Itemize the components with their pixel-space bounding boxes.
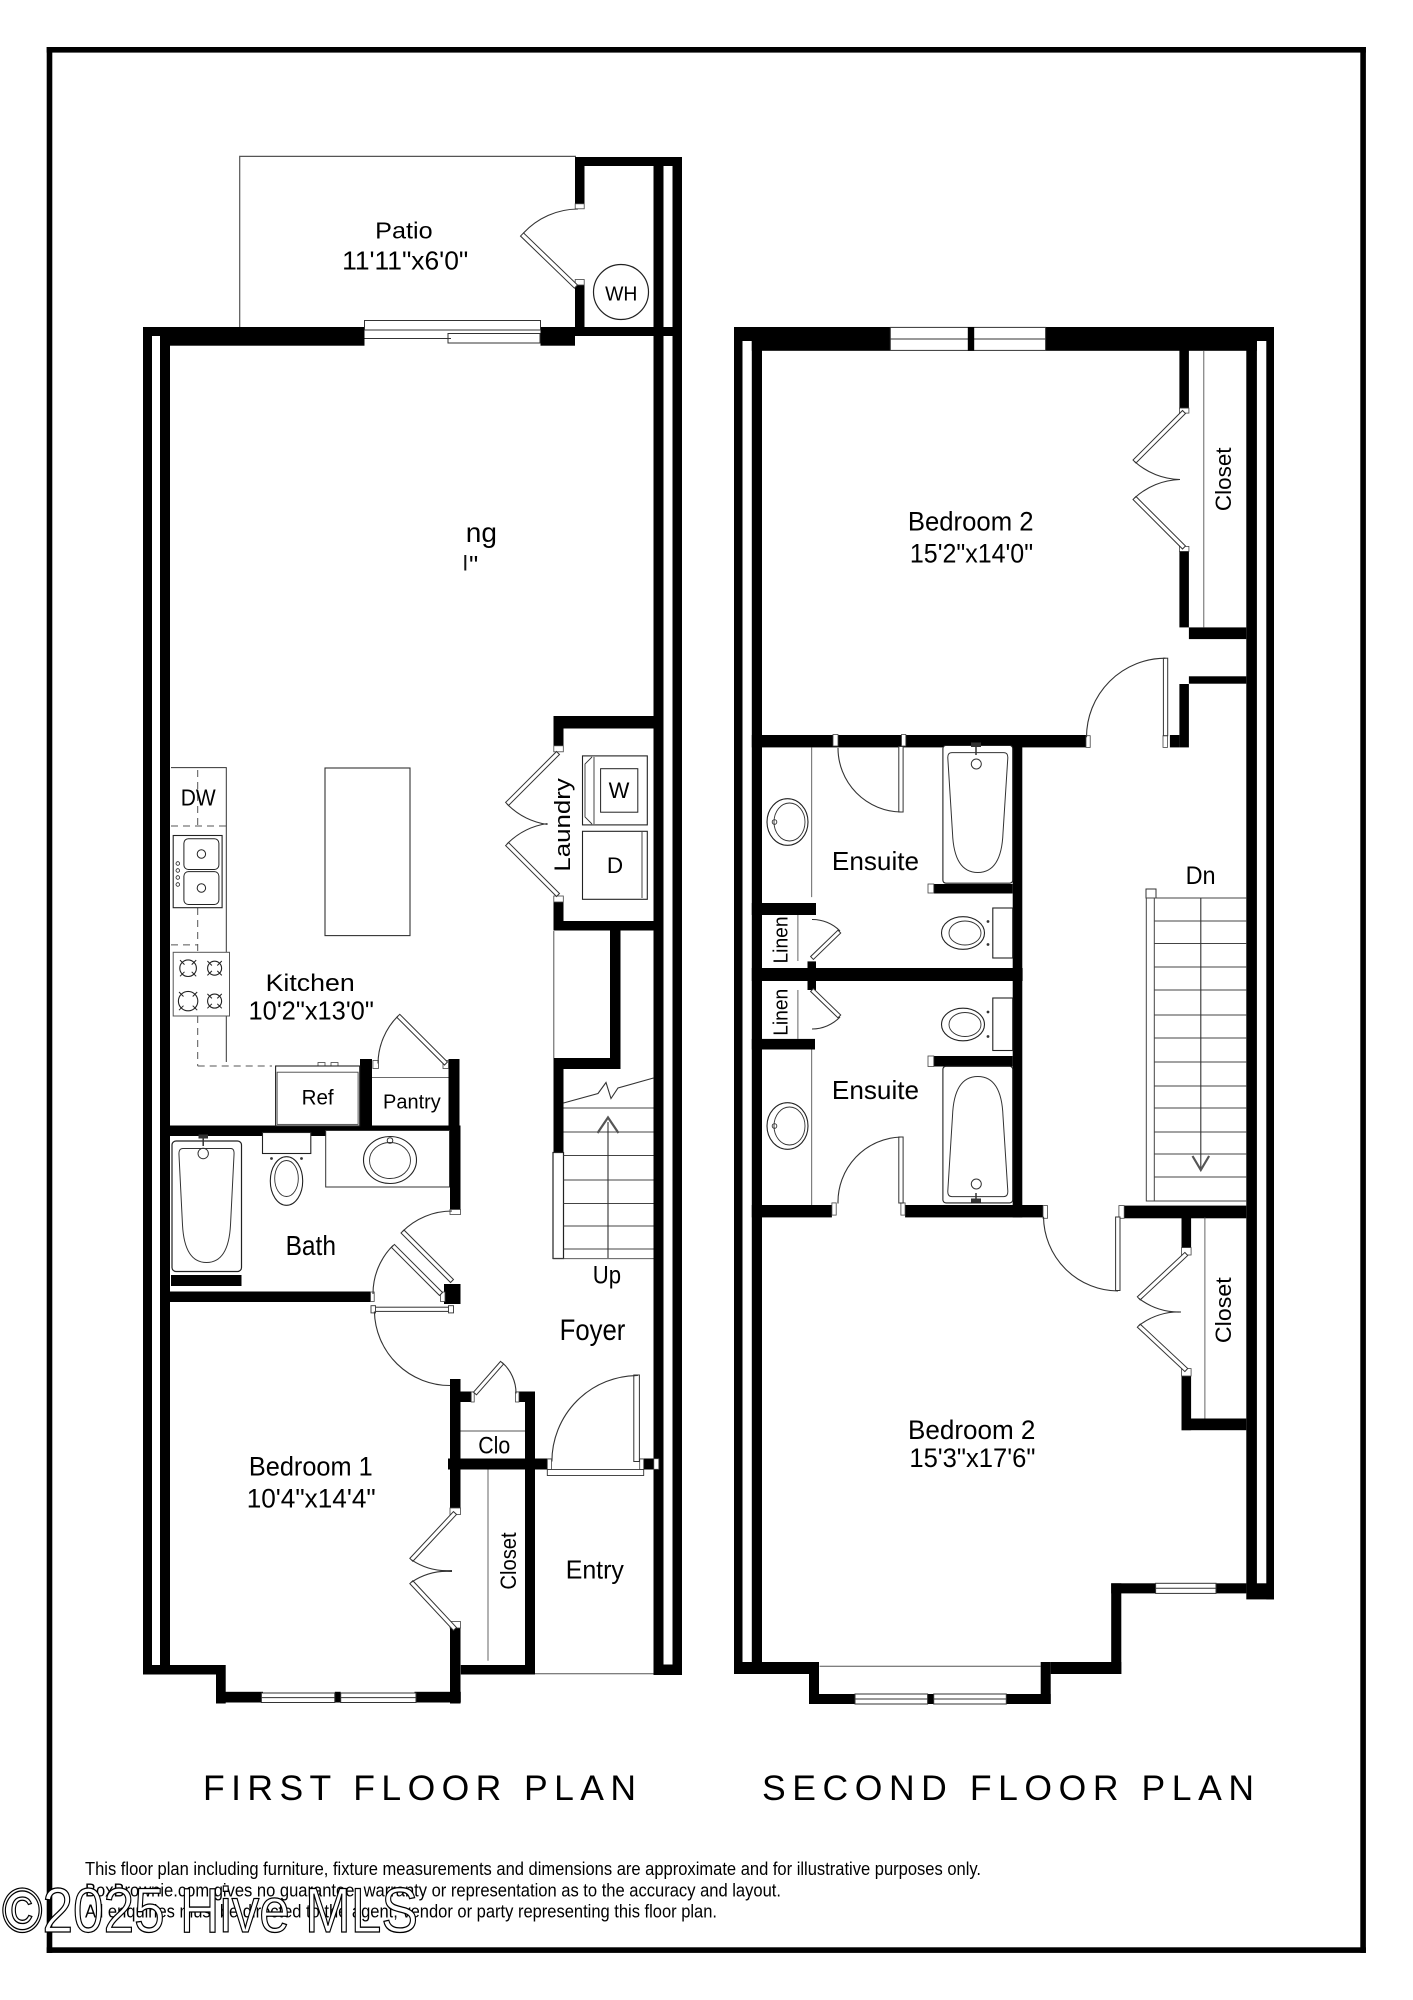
svg-text:©2025 Hive MLS: ©2025 Hive MLS — [2, 1876, 418, 1946]
svg-text:FIRST FLOOR PLAN: FIRST FLOOR PLAN — [203, 1768, 636, 1808]
svg-text:D: D — [607, 853, 623, 878]
svg-text:WH: WH — [605, 284, 637, 306]
svg-text:Bath: Bath — [286, 1230, 336, 1261]
svg-text:Closet: Closet — [496, 1532, 521, 1590]
svg-text:Clo: Clo — [478, 1433, 510, 1460]
svg-text:DW: DW — [181, 785, 216, 811]
svg-text:Bedroom 2: Bedroom 2 — [908, 507, 1034, 537]
svg-text:": " — [469, 550, 478, 580]
svg-text:Up: Up — [593, 1262, 621, 1290]
svg-text:Linen: Linen — [770, 917, 792, 964]
svg-text:11'11"x6'0": 11'11"x6'0" — [342, 246, 468, 276]
svg-text:Laundry: Laundry — [550, 778, 575, 872]
svg-text:Pantry: Pantry — [383, 1091, 441, 1114]
svg-text:Closet: Closet — [1211, 1277, 1236, 1343]
svg-text:Patio: Patio — [375, 217, 432, 243]
svg-text:Bedroom 1: Bedroom 1 — [249, 1452, 373, 1482]
svg-text:10'4"x14'4": 10'4"x14'4" — [247, 1484, 376, 1514]
svg-text:15'2"x14'0": 15'2"x14'0" — [910, 539, 1033, 569]
svg-text:SECOND FLOOR PLAN: SECOND FLOOR PLAN — [762, 1768, 1254, 1808]
svg-text:Foyer: Foyer — [560, 1314, 626, 1347]
svg-text:W: W — [609, 778, 630, 803]
svg-text:15'3"x17'6": 15'3"x17'6" — [909, 1443, 1035, 1473]
svg-text:10'2"x13'0": 10'2"x13'0" — [249, 996, 374, 1026]
svg-text:Linen: Linen — [770, 989, 792, 1036]
svg-text:Ref: Ref — [302, 1086, 334, 1109]
svg-text:ng: ng — [466, 517, 497, 548]
svg-text:Entry: Entry — [566, 1557, 624, 1585]
svg-text:Dn: Dn — [1186, 862, 1216, 890]
svg-text:Ensuite: Ensuite — [832, 846, 919, 876]
svg-text:Kitchen: Kitchen — [266, 970, 355, 997]
svg-text:Ensuite: Ensuite — [832, 1075, 919, 1105]
svg-text:Bedroom 2: Bedroom 2 — [908, 1415, 1035, 1445]
svg-text:Closet: Closet — [1211, 447, 1236, 511]
